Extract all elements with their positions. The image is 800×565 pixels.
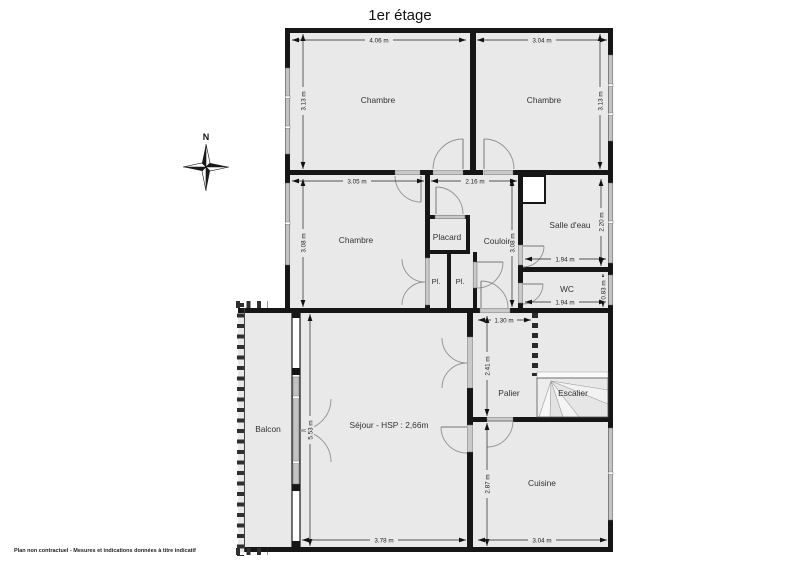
dimension-label-cuisine-width: 3.04 m (532, 537, 551, 544)
dimension-label-chambre3-depth: 3.08 m (300, 233, 307, 252)
room-label-cuisine: Cuisine (528, 478, 556, 488)
room-label-placard: Placard (433, 232, 462, 242)
floor-plan-page: 1er étage (0, 0, 800, 565)
dimension-label-couloir-haut-width: 2.16 m (465, 178, 484, 185)
room-label-balcon: Balcon (255, 424, 281, 434)
dimension-label-couloir-depth: 3.08 m (509, 233, 516, 252)
dimension-label-chambre2-depth: 3.13 m (597, 91, 604, 110)
dimension-label-sejour-width: 3.78 m (374, 537, 393, 544)
dimension-label-wc-width: 1.94 m (555, 299, 574, 306)
dimension-label-chambre3-width: 3.05 m (347, 178, 366, 185)
dimension-label-cuisine-depth: 2.87 m (484, 474, 491, 493)
room-label-pl-2: Pl. (456, 277, 465, 286)
duct-block (522, 176, 545, 203)
room-label-palier: Palier (498, 388, 520, 398)
room-label-salle-deau: Salle d'eau (549, 220, 591, 230)
dimension-label-palier-width: 1.30 m (494, 317, 513, 324)
room-label-escalier: Escalier (558, 388, 588, 398)
dimension-label-chambre2-width: 3.04 m (532, 37, 551, 44)
disclaimer-text: Plan non contractuel - Mesures et indica… (14, 548, 196, 554)
dimension-label-chambre1-width: 4.06 m (369, 37, 388, 44)
dimension-label-salle-deau-depth: 2.20 m (598, 212, 605, 231)
room-label-sejour: Séjour - HSP : 2,66m (350, 420, 429, 430)
room-label-chambre-2: Chambre (527, 95, 562, 105)
compass-north-label: N (203, 132, 210, 142)
room-label-chambre-3: Chambre (339, 235, 374, 245)
dimension-label-wc-depth: 0.83 m (600, 280, 607, 299)
room-label-wc: WC (560, 284, 574, 294)
dimension-label-chambre1-depth: 3.13 m (300, 91, 307, 110)
room-label-pl-1: Pl. (432, 277, 441, 286)
dimension-label-sejour-depth: 5.53 m (307, 420, 314, 439)
room-label-couloir: Couloir (484, 236, 511, 246)
floor-plan-canvas: 1er étage (0, 0, 800, 565)
dimension-label-palier-depth: 2.41 m (484, 356, 491, 375)
page-title: 1er étage (368, 7, 431, 24)
dimension-label-salle-deau-width: 1.94 m (555, 256, 574, 263)
room-label-chambre-1: Chambre (361, 95, 396, 105)
